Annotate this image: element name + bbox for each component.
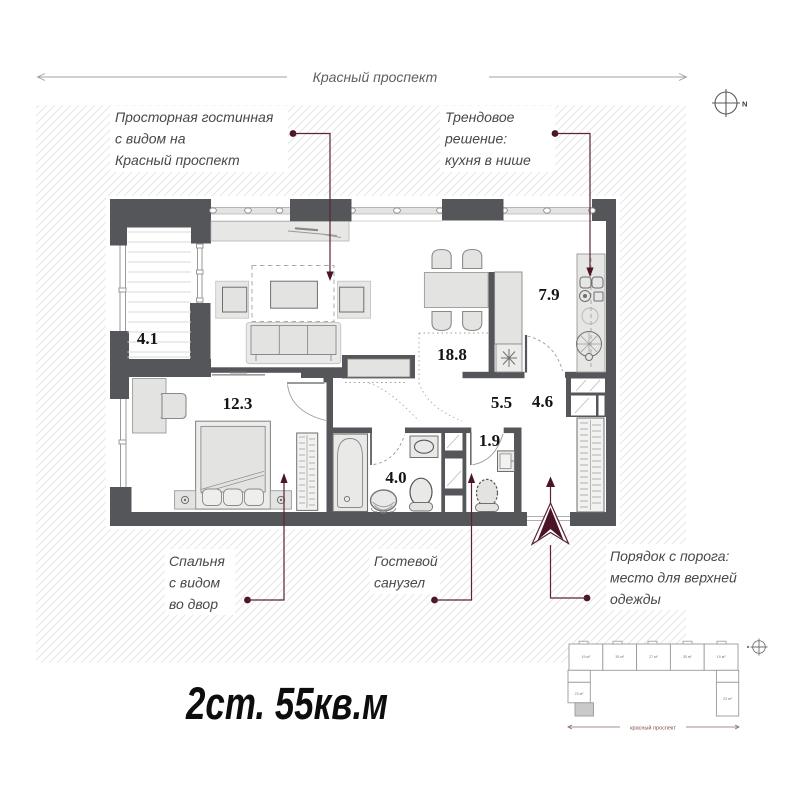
svg-text:место для верхней: место для верхней [610,570,737,586]
svg-text:35 м²: 35 м² [615,655,624,659]
svg-text:Красный проспект: Красный проспект [115,152,240,168]
svg-text:7.9: 7.9 [538,285,559,304]
svg-text:санузел: санузел [374,575,425,591]
svg-text:Порядок с порога:: Порядок с порога: [610,548,730,564]
svg-text:Трендовое: Трендовое [445,109,515,125]
svg-text:23 м²: 23 м² [575,692,584,696]
svg-text:кухня в нише: кухня в нише [445,152,531,168]
svg-text:во двор: во двор [169,596,218,612]
svg-text:5.5: 5.5 [491,393,512,412]
svg-text:23 м²: 23 м² [723,697,732,701]
svg-text:с видом на: с видом на [115,131,186,147]
svg-text:Красный проспект: Красный проспект [313,69,438,85]
svg-text:2ст. 55кв.м: 2ст. 55кв.м [185,678,388,729]
svg-text:27 м²: 27 м² [649,655,658,659]
svg-text:красный проспект: красный проспект [630,725,676,732]
svg-text:1.9: 1.9 [479,431,500,450]
svg-text:4.6: 4.6 [532,392,553,411]
svg-text:19 м²: 19 м² [582,655,591,659]
svg-text:N: N [742,100,747,109]
svg-text:12.3: 12.3 [223,394,253,413]
svg-text:одежды: одежды [610,591,662,607]
svg-text:4.1: 4.1 [137,329,158,348]
svg-text:Спальня: Спальня [169,553,225,569]
svg-text:решение:: решение: [444,131,507,147]
svg-text:35 м²: 35 м² [683,655,692,659]
svg-text:Просторная гостинная: Просторная гостинная [115,109,274,125]
svg-text:19 м²: 19 м² [717,655,726,659]
svg-text:с видом: с видом [169,575,221,591]
svg-text:4.0: 4.0 [385,468,406,487]
svg-text:18.8: 18.8 [437,345,467,364]
svg-text:Гостевой: Гостевой [374,553,438,569]
